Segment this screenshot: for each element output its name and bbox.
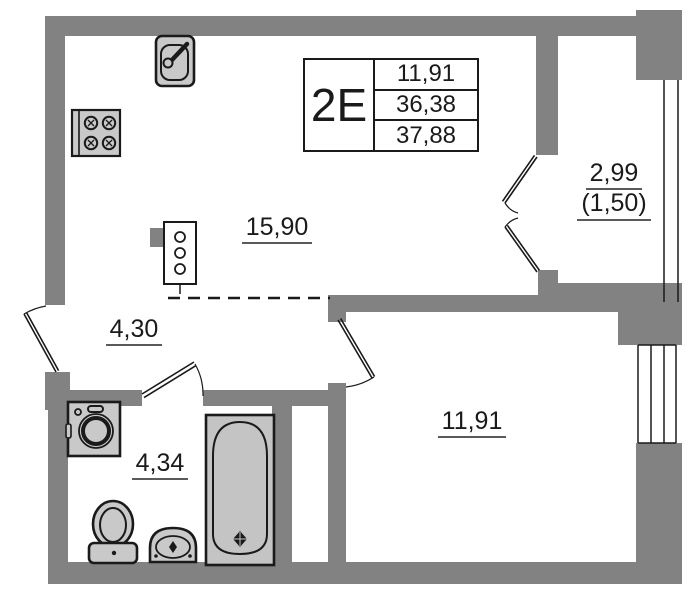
info-value-living-area: 11,91 bbox=[375, 60, 477, 91]
balcony-glazing bbox=[664, 80, 678, 302]
room-door bbox=[338, 319, 375, 388]
unit-type-label: 2Е bbox=[305, 60, 375, 150]
wall-bottom bbox=[48, 562, 682, 584]
wall-balcony-bottom-stub bbox=[538, 270, 558, 295]
room-label-kitchen-living: 15,90 bbox=[234, 214, 320, 244]
stove-icon bbox=[72, 110, 120, 156]
windows bbox=[638, 80, 678, 443]
wall-left-upper bbox=[45, 16, 65, 305]
floor-plan: 2Е 11,91 36,38 37,88 15,90 4,30 4,34 11,… bbox=[0, 0, 698, 600]
balcony-reduced-area: (1,50) bbox=[577, 190, 650, 220]
wall-right-lower bbox=[636, 443, 682, 564]
washing-machine-icon bbox=[66, 402, 120, 456]
info-table: 2Е 11,91 36,38 37,88 bbox=[303, 58, 479, 152]
entrance-door bbox=[24, 306, 59, 372]
kitchen-sink-icon bbox=[156, 36, 194, 86]
room-label-hallway: 4,30 bbox=[100, 316, 168, 346]
wall-balcony-top-stub bbox=[536, 36, 558, 155]
bedroom-window bbox=[638, 345, 676, 443]
info-value-total-area: 37,88 bbox=[375, 121, 477, 150]
info-table-values: 11,91 36,38 37,88 bbox=[375, 60, 477, 150]
info-value-area: 36,38 bbox=[375, 91, 477, 122]
balcony-door-window bbox=[503, 155, 540, 272]
room-label-bedroom: 11,91 bbox=[428, 408, 516, 438]
room-label-bathroom: 4,34 bbox=[126, 450, 194, 480]
doors bbox=[24, 155, 539, 397]
wall-right-mid-block bbox=[618, 300, 682, 345]
toilet-icon bbox=[89, 501, 137, 563]
wall-balcony-bottom bbox=[540, 283, 682, 302]
wall-top bbox=[45, 16, 682, 36]
wall-room-left-lower bbox=[328, 383, 346, 564]
room-label-balcony: 2,99 (1,50) bbox=[572, 160, 656, 221]
ventilation-riser-icon bbox=[164, 222, 196, 294]
bathroom-door bbox=[142, 362, 203, 398]
wall-top-right-block bbox=[636, 10, 682, 80]
wash-basin-icon bbox=[150, 528, 196, 562]
bathtub-icon bbox=[206, 415, 274, 565]
balcony-area: 2,99 bbox=[586, 160, 643, 190]
